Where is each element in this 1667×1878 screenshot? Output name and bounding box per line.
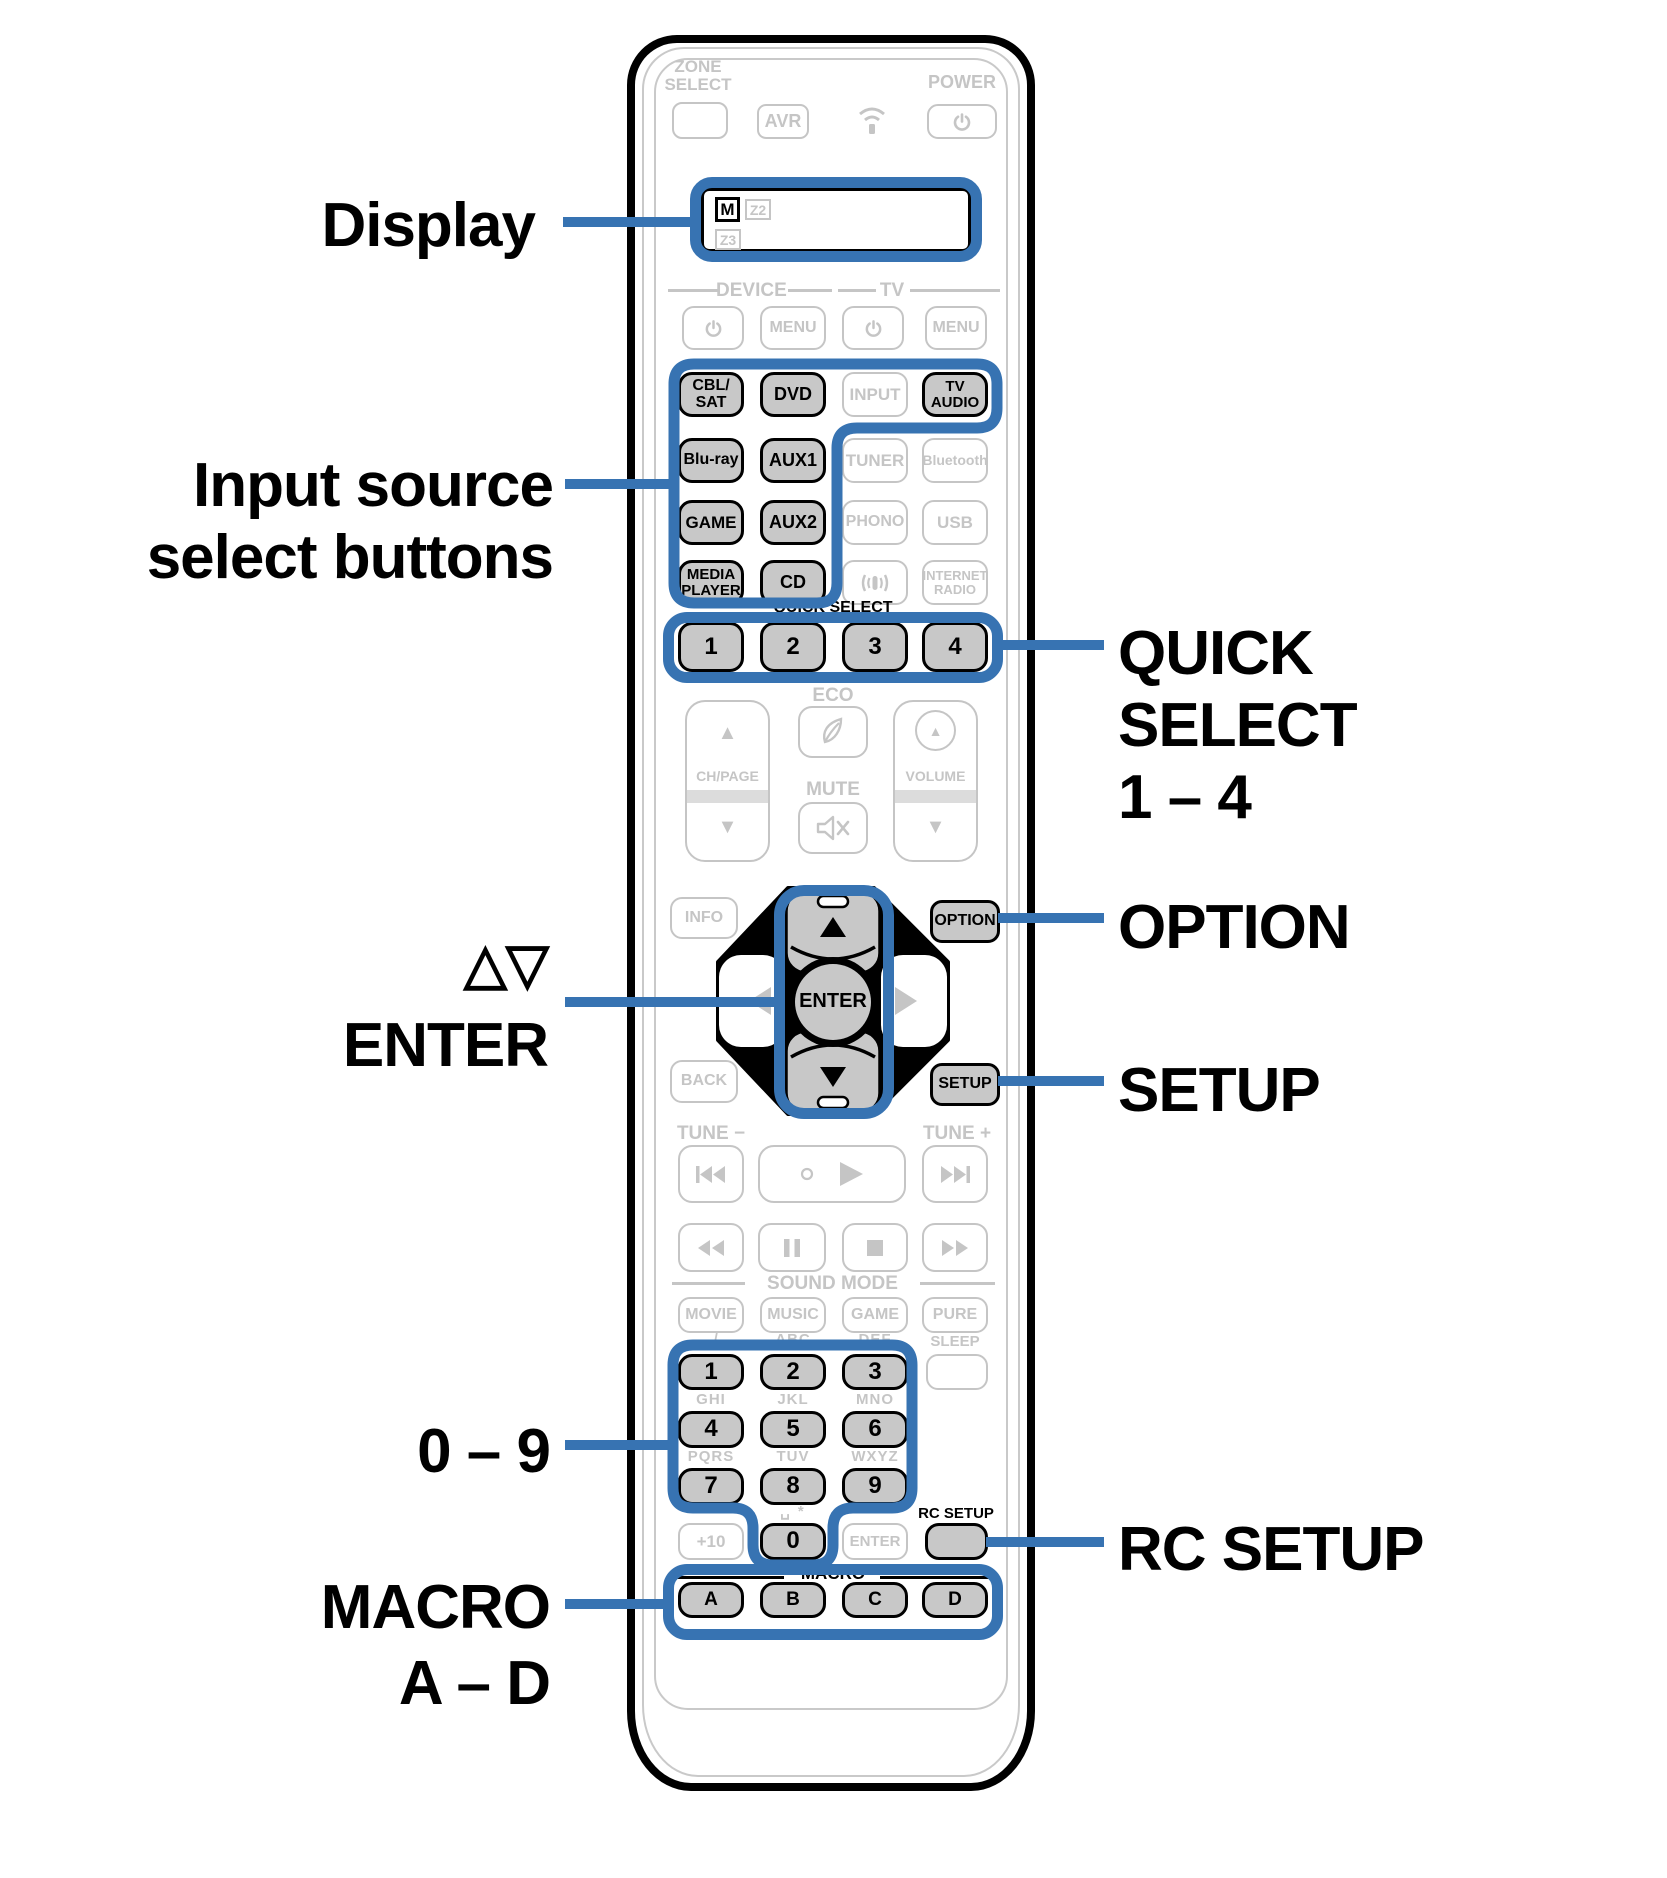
option-callout-text: OPTION (1118, 893, 1350, 962)
power-label: POWER (923, 73, 1001, 92)
input-callout-line (565, 479, 674, 489)
eco-label-text: ECO (812, 685, 853, 706)
device-header-line-right (788, 289, 832, 292)
rc-setup-callout-text: RC SETUP (1118, 1515, 1423, 1584)
sound-mode-line-right (920, 1282, 995, 1285)
pure-label: PURE (933, 1307, 977, 1324)
input-source-line2: select buttons (147, 523, 553, 592)
volume-up-icon[interactable]: ▲ (915, 710, 956, 751)
option-callout-label: OPTION (1118, 892, 1350, 964)
rewind-button[interactable] (678, 1223, 744, 1272)
device-header-text: DEVICE (716, 280, 787, 301)
sound-mode-header: SOUND MODE (745, 1274, 920, 1294)
mute-speaker-icon (815, 814, 851, 842)
sound-movie-button[interactable]: MOVIE (678, 1297, 744, 1333)
sound-mode-line-left (672, 1282, 745, 1285)
sound-music-button[interactable]: MUSIC (760, 1297, 826, 1333)
display-callout-label: Display (321, 190, 535, 262)
quick-select-callout-label: QUICK SELECT 1 – 4 (1118, 618, 1357, 834)
pause-button[interactable] (758, 1223, 826, 1272)
quick-select-callout-box (663, 612, 1003, 683)
tune-minus-text: TUNE − (677, 1123, 745, 1144)
display-callout-text: Display (321, 191, 535, 260)
power-icon (952, 112, 972, 132)
skip-back-button[interactable] (678, 1145, 744, 1203)
wifi-transmit-icon (853, 101, 891, 139)
sleep-button[interactable] (926, 1354, 988, 1390)
tv-header-line-right (910, 289, 1000, 292)
mute-button[interactable] (798, 802, 868, 854)
power-icon (864, 319, 883, 338)
display-callout-box (690, 177, 982, 262)
device-menu-button[interactable]: MENU (760, 306, 826, 350)
macro-callout-label: MACRO (321, 1572, 550, 1644)
power-label-text: POWER (928, 72, 996, 92)
tv-menu-label: MENU (932, 320, 979, 337)
device-header-line-left (668, 289, 718, 292)
display-callout-line (563, 217, 690, 227)
movie-label: MOVIE (685, 1307, 737, 1324)
rc-setup-small-label: RC SETUP (918, 1506, 994, 1522)
channel-up-icon[interactable]: ▲ (687, 722, 768, 745)
play-button[interactable] (758, 1145, 906, 1203)
device-power-button[interactable] (682, 306, 744, 350)
tv-header-text: TV (880, 280, 904, 301)
cursor-symbols-text: △▽ (464, 932, 548, 995)
quick-callout-line1: QUICK (1118, 619, 1313, 688)
sound-mode-header-text: SOUND MODE (767, 1273, 898, 1294)
option-callout-line (998, 913, 1104, 923)
volume-label-text: VOLUME (906, 768, 966, 784)
sound-game-button[interactable]: GAME (842, 1297, 908, 1333)
volume-label: VOLUME (895, 769, 976, 784)
power-button[interactable] (927, 104, 997, 139)
cursor-symbols-callout-label: △▽ (464, 928, 548, 1000)
tune-plus-label: TUNE + (918, 1124, 996, 1144)
rewind-icon (697, 1240, 725, 1256)
macro-callout-box (663, 1564, 1003, 1640)
tv-header: TV (876, 281, 908, 301)
fast-forward-button[interactable] (922, 1223, 988, 1272)
rc-setup-callout-line (986, 1537, 1104, 1547)
remote-diagram: ZONE SELECT AVR POWER M Z2 Z3 DEVICE TV (0, 0, 1667, 1878)
zone-select-line2: SELECT (664, 75, 731, 94)
input-source-callout-outline (660, 350, 1010, 615)
eco-button[interactable] (798, 706, 868, 758)
pause-icon (784, 1239, 800, 1257)
skip-forward-button[interactable] (922, 1145, 988, 1203)
eco-leaf-icon (819, 716, 847, 748)
zone-select-line1: ZONE (674, 57, 721, 76)
tv-power-button[interactable] (842, 306, 904, 350)
mute-label-text: MUTE (806, 779, 860, 800)
enter-callout-line (565, 997, 775, 1007)
sound-pure-button[interactable]: PURE (922, 1297, 988, 1333)
rocker-seam (687, 790, 768, 803)
mute-label: MUTE (798, 780, 868, 800)
channel-down-icon[interactable]: ▼ (687, 816, 768, 839)
rocker-seam (895, 790, 976, 803)
stop-icon (867, 1240, 883, 1256)
tv-header-line-left (838, 289, 876, 292)
quick-callout-line (1001, 640, 1104, 650)
quick-callout-line2: SELECT (1118, 691, 1357, 760)
stop-button[interactable] (842, 1223, 908, 1272)
digits-callout-label: 0 – 9 (417, 1416, 550, 1488)
tune-plus-text: TUNE + (923, 1123, 991, 1144)
macro-range-callout-label: A – D (399, 1648, 550, 1720)
channel-page-rocker[interactable]: ▲ CH/PAGE ▼ (685, 700, 770, 862)
setup-callout-text: SETUP (1118, 1056, 1320, 1125)
avr-button[interactable]: AVR (757, 104, 809, 139)
skip-back-icon (696, 1166, 726, 1183)
setup-callout-line (998, 1076, 1104, 1086)
setup-callout-label: SETUP (1118, 1055, 1320, 1127)
sleep-label: SLEEP (920, 1334, 990, 1350)
rc-setup-small-text: RC SETUP (918, 1505, 994, 1522)
tune-minus-label: TUNE − (672, 1124, 750, 1144)
macro-callout-text: MACRO (321, 1573, 550, 1642)
ch-page-label-text: CH/PAGE (696, 768, 759, 784)
zone-select-label: ZONE SELECT (656, 58, 740, 94)
tv-menu-button[interactable]: MENU (925, 306, 987, 350)
power-icon (704, 319, 723, 338)
volume-down-icon[interactable]: ▼ (895, 816, 976, 839)
device-header: DEVICE (716, 281, 786, 301)
zone-select-button[interactable] (672, 102, 728, 139)
macro-range-text: A – D (399, 1649, 550, 1718)
input-source-callout-label: Input source select buttons (147, 450, 553, 594)
music-label: MUSIC (767, 1307, 819, 1324)
rc-setup-button[interactable] (925, 1523, 988, 1560)
device-menu-label: MENU (769, 320, 816, 337)
sound-game-label: GAME (851, 1307, 899, 1324)
play-icon (838, 1161, 864, 1187)
skip-forward-icon (940, 1166, 970, 1183)
digits-callout-line (565, 1440, 673, 1450)
digits-callout-text: 0 – 9 (417, 1417, 550, 1486)
enter-callout-text: ENTER (343, 1011, 548, 1080)
macro-callout-line (565, 1599, 667, 1609)
record-dot-icon (800, 1167, 814, 1181)
volume-rocker[interactable]: ▲ VOLUME ▼ (893, 700, 978, 862)
quick-callout-line3: 1 – 4 (1118, 763, 1251, 832)
cursor-callout-box (774, 885, 894, 1119)
enter-callout-label: ENTER (343, 1010, 548, 1082)
fast-forward-icon (941, 1240, 969, 1256)
input-source-line1: Input source (193, 451, 553, 520)
eco-label: ECO (798, 686, 868, 706)
ch-page-label: CH/PAGE (687, 769, 768, 784)
sleep-label-text: SLEEP (930, 1333, 979, 1350)
digits-callout-outline (660, 1330, 925, 1580)
avr-label: AVR (765, 112, 802, 131)
rc-setup-callout-label: RC SETUP (1118, 1514, 1423, 1586)
